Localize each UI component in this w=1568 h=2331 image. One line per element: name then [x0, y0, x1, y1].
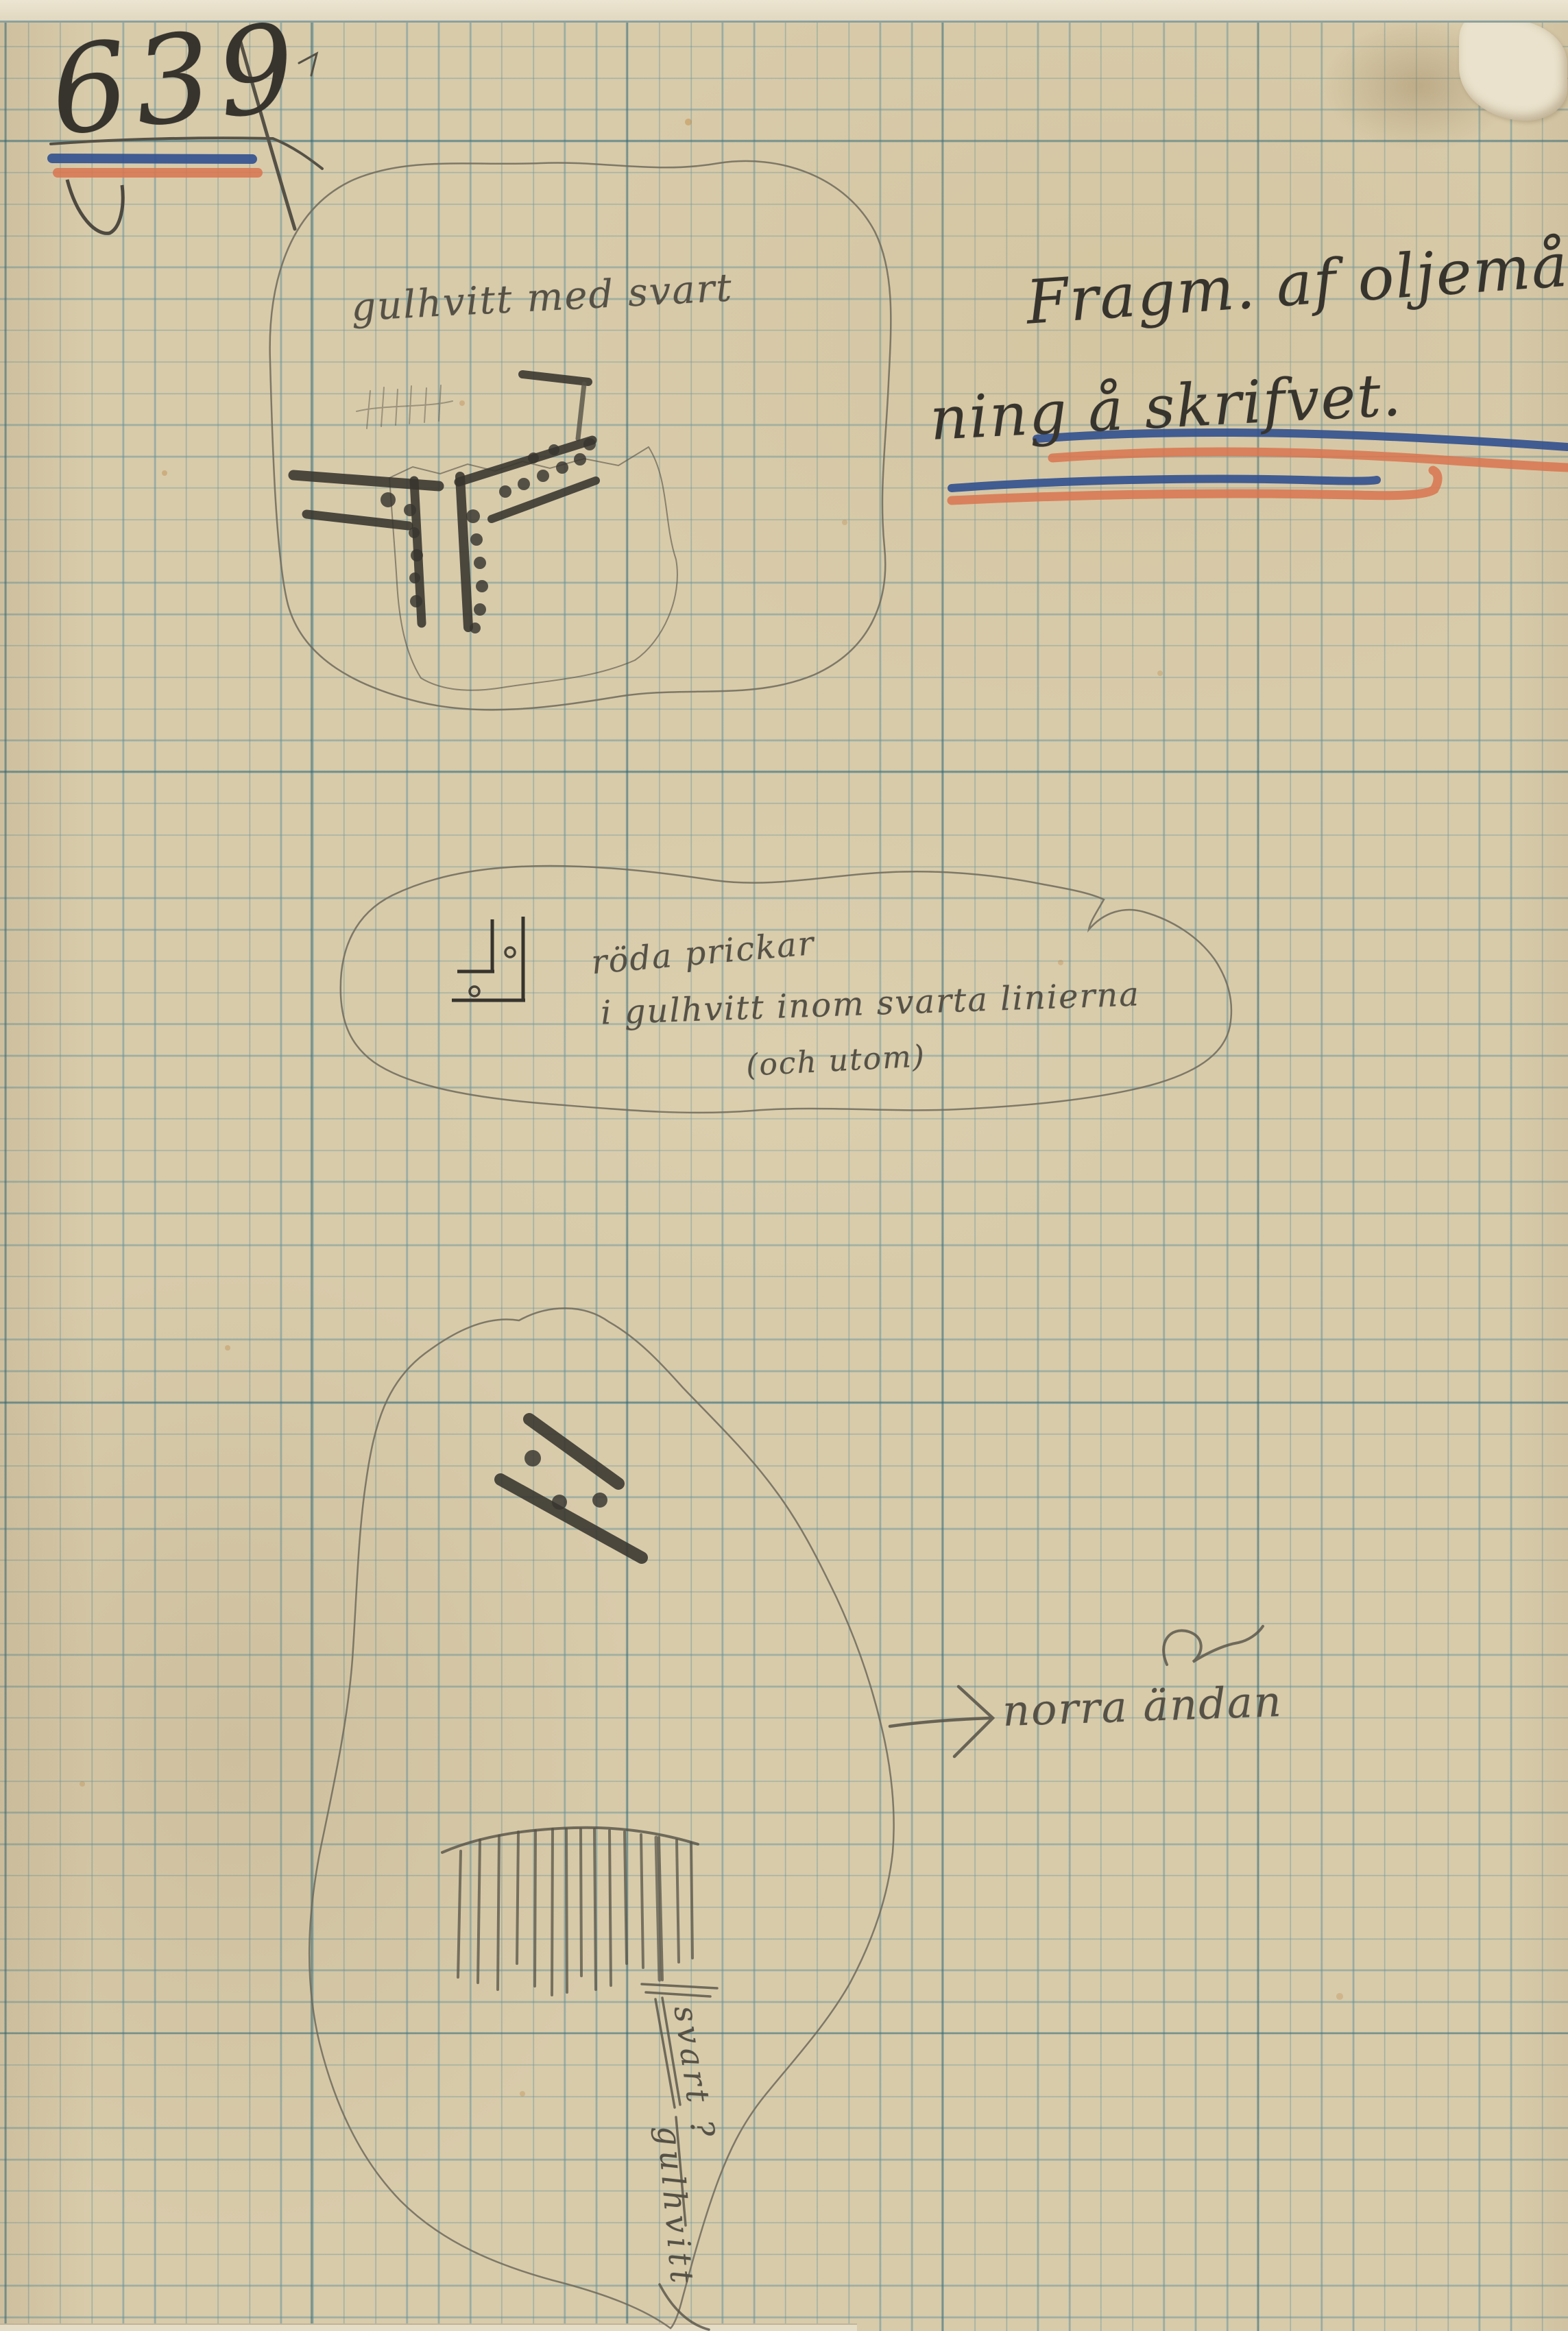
underline-red-heading-1: [1052, 452, 1567, 468]
fragment-3-arrow-note: norra ändan: [1002, 1676, 1283, 1736]
pencil-sketch-overlay: [0, 0, 1568, 2331]
fragment-1-painted-bands: [293, 374, 596, 627]
fragment-3-outline: [309, 1308, 893, 2328]
underline-blue-heading-2: [952, 479, 1377, 489]
fragment-1-sketch: [270, 161, 891, 710]
fragment-3-sketch: [309, 1308, 1263, 2330]
catalog-number: 639: [44, 0, 308, 163]
fragment-1-hatching: [357, 385, 453, 428]
fragment-3-comb-pattern: [442, 1828, 698, 1995]
scanned-notebook-page: 639 Fragm. af oljemål- ning å skrifvet. …: [0, 0, 1568, 2331]
fragment-2-corner-motif: [452, 917, 525, 1000]
squiggle-mark: [1163, 1626, 1263, 1665]
arrow-right-icon: [890, 1687, 993, 1756]
fragment-3-diagonal-bands: [500, 1419, 642, 1558]
